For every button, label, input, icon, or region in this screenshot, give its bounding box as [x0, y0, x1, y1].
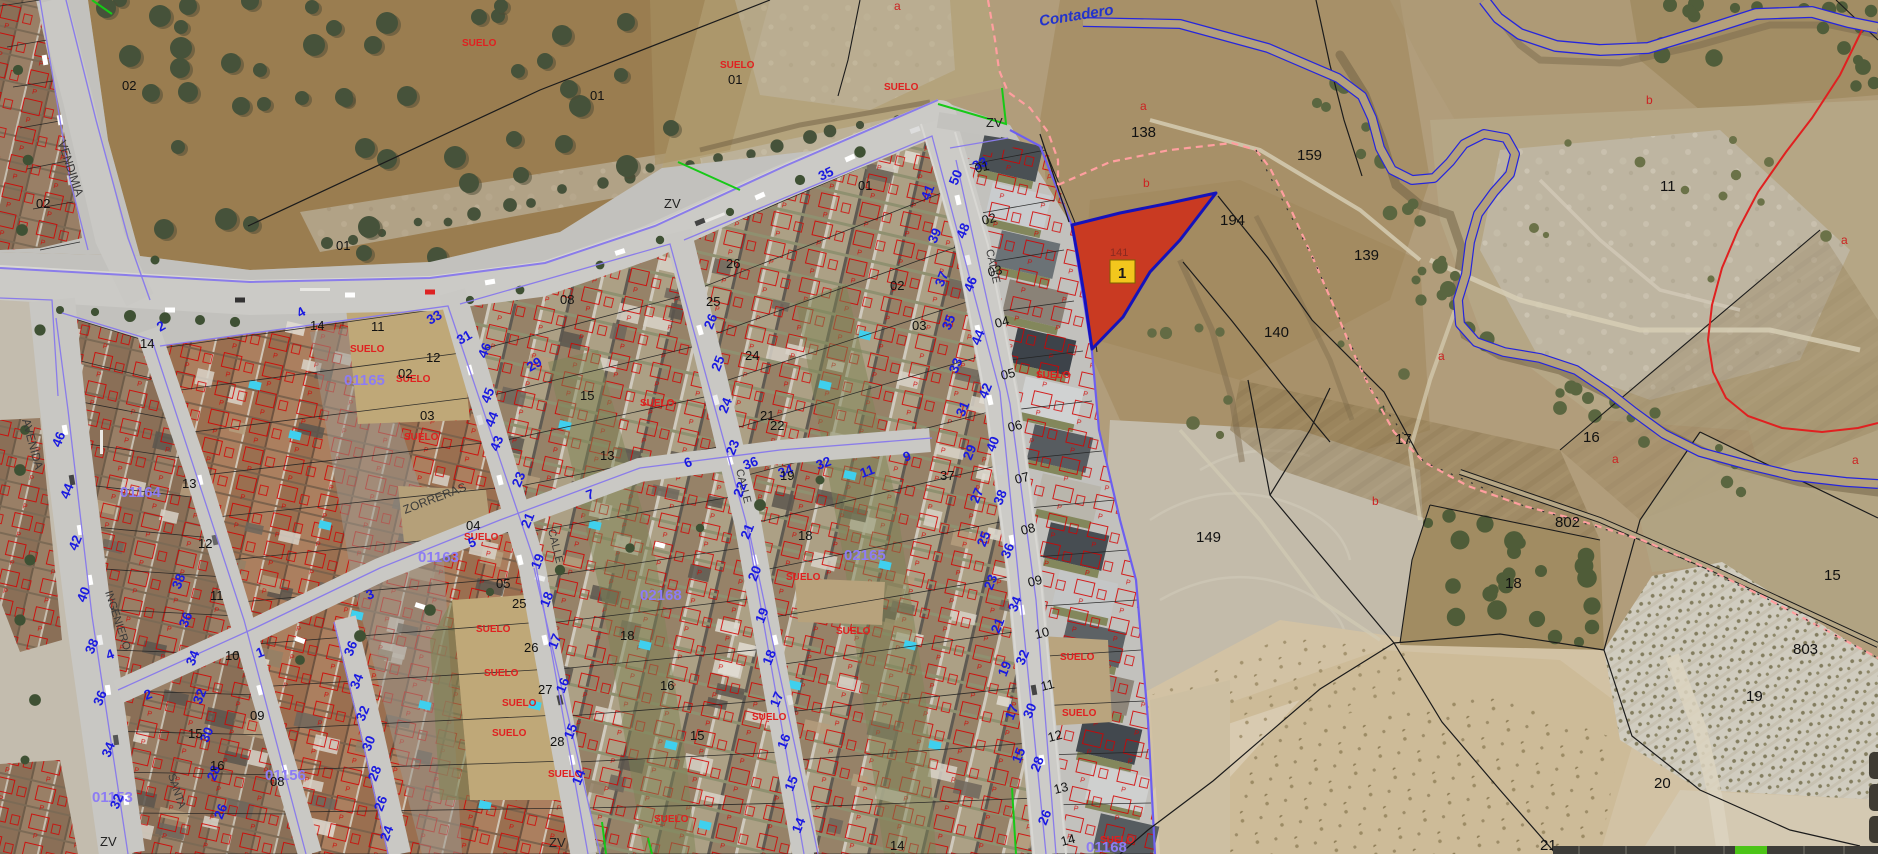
svg-text:b: b — [1646, 93, 1653, 107]
svg-text:16: 16 — [660, 678, 674, 693]
svg-text:803: 803 — [1793, 641, 1818, 658]
svg-text:13: 13 — [600, 448, 614, 463]
svg-text:a: a — [1612, 452, 1619, 466]
svg-text:SUELO: SUELO — [836, 626, 871, 637]
svg-text:a: a — [1140, 99, 1147, 113]
svg-text:a: a — [1438, 349, 1445, 363]
svg-text:141: 141 — [1110, 247, 1128, 259]
svg-text:14: 14 — [310, 318, 324, 333]
svg-text:25: 25 — [512, 596, 526, 611]
svg-text:08: 08 — [560, 292, 574, 307]
svg-text:SUELO: SUELO — [502, 698, 537, 709]
svg-text:03: 03 — [420, 408, 434, 423]
svg-text:SUELO: SUELO — [492, 728, 527, 739]
svg-text:ZV: ZV — [549, 835, 566, 850]
svg-text:14: 14 — [890, 838, 904, 853]
svg-text:12: 12 — [198, 536, 212, 551]
svg-text:15: 15 — [188, 726, 202, 741]
svg-text:18: 18 — [1505, 575, 1522, 592]
svg-text:20: 20 — [1654, 775, 1671, 792]
svg-text:b: b — [1372, 494, 1379, 508]
svg-text:09: 09 — [250, 708, 264, 723]
svg-text:15: 15 — [690, 728, 704, 743]
svg-text:26: 26 — [726, 256, 740, 271]
svg-text:SUELO: SUELO — [404, 432, 439, 443]
svg-text:16: 16 — [1583, 429, 1600, 446]
svg-text:37: 37 — [940, 468, 954, 483]
svg-text:149: 149 — [1196, 529, 1221, 546]
svg-text:17: 17 — [1395, 431, 1412, 448]
svg-text:ZV: ZV — [664, 196, 681, 211]
svg-text:03: 03 — [912, 318, 926, 333]
svg-text:02: 02 — [890, 278, 904, 293]
svg-text:SUELO: SUELO — [1036, 370, 1071, 381]
svg-text:a: a — [894, 0, 901, 13]
svg-text:194: 194 — [1220, 212, 1245, 229]
svg-text:01: 01 — [336, 238, 350, 253]
svg-text:13: 13 — [182, 476, 196, 491]
svg-text:18: 18 — [620, 628, 634, 643]
svg-text:SUELO: SUELO — [350, 344, 385, 355]
svg-text:01: 01 — [858, 178, 872, 193]
svg-text:159: 159 — [1297, 147, 1322, 164]
svg-text:14: 14 — [140, 336, 154, 351]
svg-text:ZV: ZV — [100, 834, 117, 849]
svg-text:16: 16 — [210, 758, 224, 773]
svg-text:139: 139 — [1354, 247, 1379, 264]
svg-text:28: 28 — [550, 734, 564, 749]
svg-text:22: 22 — [770, 418, 784, 433]
svg-text:02: 02 — [122, 78, 136, 93]
svg-text:01164: 01164 — [120, 484, 162, 501]
svg-text:02165: 02165 — [844, 547, 886, 564]
svg-text:24: 24 — [745, 348, 759, 363]
svg-text:1: 1 — [1118, 265, 1126, 282]
svg-text:SUELO: SUELO — [1062, 708, 1097, 719]
svg-text:01: 01 — [590, 88, 604, 103]
svg-text:02: 02 — [398, 366, 412, 381]
svg-text:04: 04 — [466, 518, 480, 533]
svg-text:02168: 02168 — [640, 587, 682, 604]
svg-text:SUELO: SUELO — [476, 624, 511, 635]
svg-text:SUELO: SUELO — [1060, 652, 1095, 663]
svg-text:18: 18 — [798, 528, 812, 543]
svg-text:SUELO: SUELO — [484, 668, 519, 679]
svg-text:a: a — [1841, 233, 1848, 247]
svg-text:27: 27 — [538, 682, 552, 697]
svg-text:12: 12 — [426, 350, 440, 365]
svg-text:15: 15 — [1824, 567, 1841, 584]
svg-text:SUELO: SUELO — [462, 38, 497, 49]
svg-text:11: 11 — [371, 319, 385, 334]
svg-text:01163: 01163 — [418, 549, 459, 566]
svg-text:01: 01 — [728, 72, 742, 87]
svg-text:02: 02 — [36, 196, 50, 211]
svg-text:SUELO: SUELO — [640, 398, 675, 409]
svg-text:08: 08 — [270, 774, 284, 789]
svg-text:802: 802 — [1555, 514, 1580, 531]
svg-text:138: 138 — [1131, 124, 1156, 141]
svg-text:SUELO: SUELO — [884, 82, 919, 93]
svg-text:19: 19 — [1746, 688, 1763, 705]
svg-text:SUELO: SUELO — [720, 60, 755, 71]
svg-text:10: 10 — [225, 648, 239, 663]
svg-text:11: 11 — [1660, 178, 1676, 195]
svg-text:05: 05 — [496, 576, 510, 591]
svg-text:b: b — [1143, 176, 1150, 190]
svg-text:ZV: ZV — [986, 115, 1003, 130]
svg-text:26: 26 — [524, 640, 538, 655]
svg-text:SUELO: SUELO — [752, 712, 787, 723]
svg-text:01165: 01165 — [344, 372, 385, 389]
svg-text:SUELO: SUELO — [786, 572, 821, 583]
svg-text:19: 19 — [780, 468, 794, 483]
svg-text:25: 25 — [706, 294, 720, 309]
svg-text:SUELO: SUELO — [654, 814, 689, 825]
svg-text:01168: 01168 — [1086, 839, 1127, 854]
svg-text:15: 15 — [580, 388, 594, 403]
svg-text:11: 11 — [210, 588, 224, 603]
svg-text:a: a — [1852, 453, 1859, 467]
svg-text:140: 140 — [1264, 324, 1289, 341]
